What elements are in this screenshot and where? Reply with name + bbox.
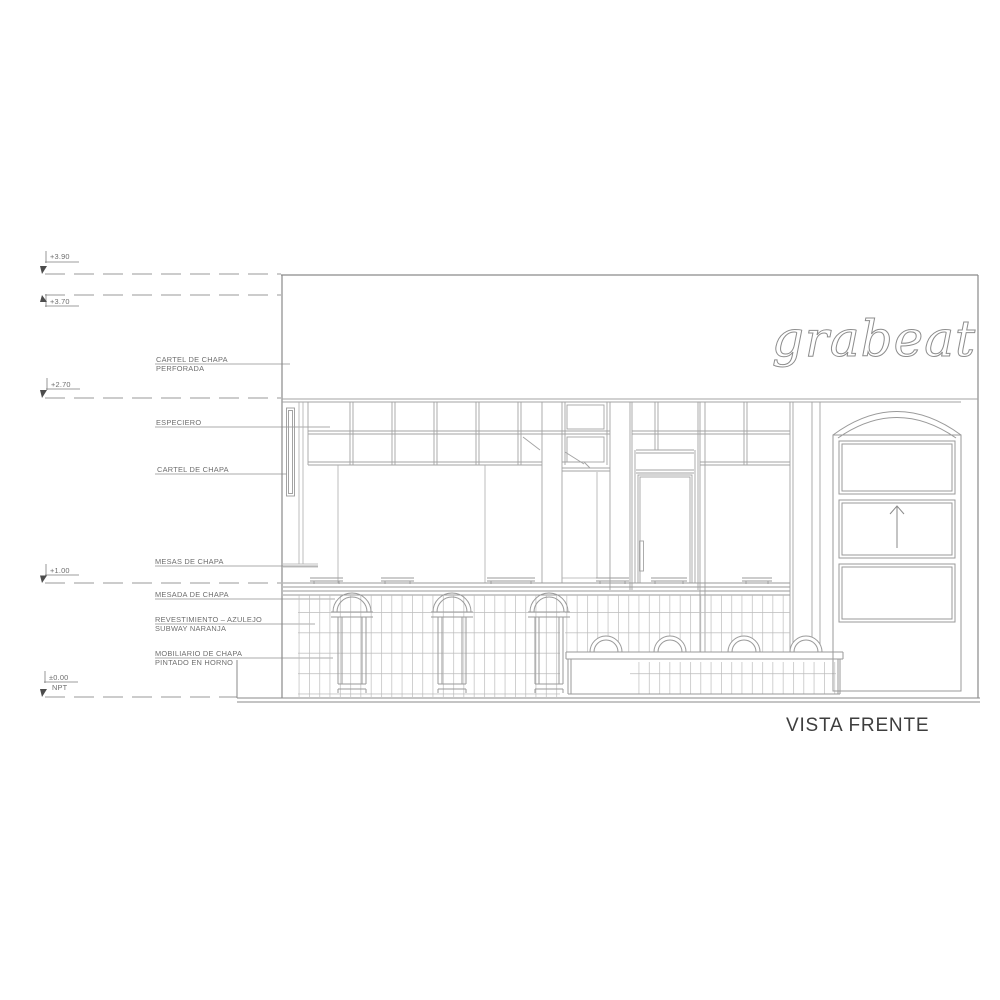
annotation-line2: PERFORADA <box>156 365 204 373</box>
level-label: +1.00 <box>50 567 70 575</box>
up-arrow-icon <box>890 506 904 548</box>
cartel-chapa-vertical <box>287 408 295 496</box>
elevation-linework: grabeat <box>0 0 1000 1000</box>
annotation-line1: MESAS DE CHAPA <box>155 558 224 566</box>
display-cabinet <box>833 412 961 692</box>
architectural-drawing: grabeat +3.90 +3.70 +2.70 +1.00 ±0.00 NP… <box>0 0 1000 1000</box>
annotation-line2: SUBWAY NARANJA <box>155 625 226 633</box>
level-markers <box>40 251 80 697</box>
sign-band <box>282 399 978 402</box>
level-label: +3.90 <box>50 253 70 261</box>
level-note: NPT <box>52 684 67 692</box>
annotation-line1: ESPECIERO <box>156 419 201 427</box>
annotation-line1: MESADA DE CHAPA <box>155 591 229 599</box>
annotation-line1: CARTEL DE CHAPA <box>156 356 228 364</box>
logo-grabeat: grabeat <box>772 310 976 368</box>
level-label: ±0.00 <box>49 674 68 682</box>
level-label: +3.70 <box>50 298 70 306</box>
view-title: VISTA FRENTE <box>786 715 929 737</box>
counter-mesada <box>283 578 790 587</box>
annotation-line1: REVESTIMIENTO – AZULEJO <box>155 616 262 624</box>
open-pane-diagonal-icon <box>523 437 584 464</box>
shopfront-glazing <box>283 402 610 583</box>
level-lines <box>45 274 281 697</box>
annotation-line1: CARTEL DE CHAPA <box>157 466 229 474</box>
annotation-line2: PINTADO EN HORNO <box>155 659 233 667</box>
level-label: +2.70 <box>51 381 71 389</box>
annotation-line1: MOBILIARIO DE CHAPA <box>155 650 242 658</box>
entry-door <box>632 402 698 590</box>
level-arrow-icon <box>40 266 47 697</box>
cabinet-arch <box>833 412 961 436</box>
